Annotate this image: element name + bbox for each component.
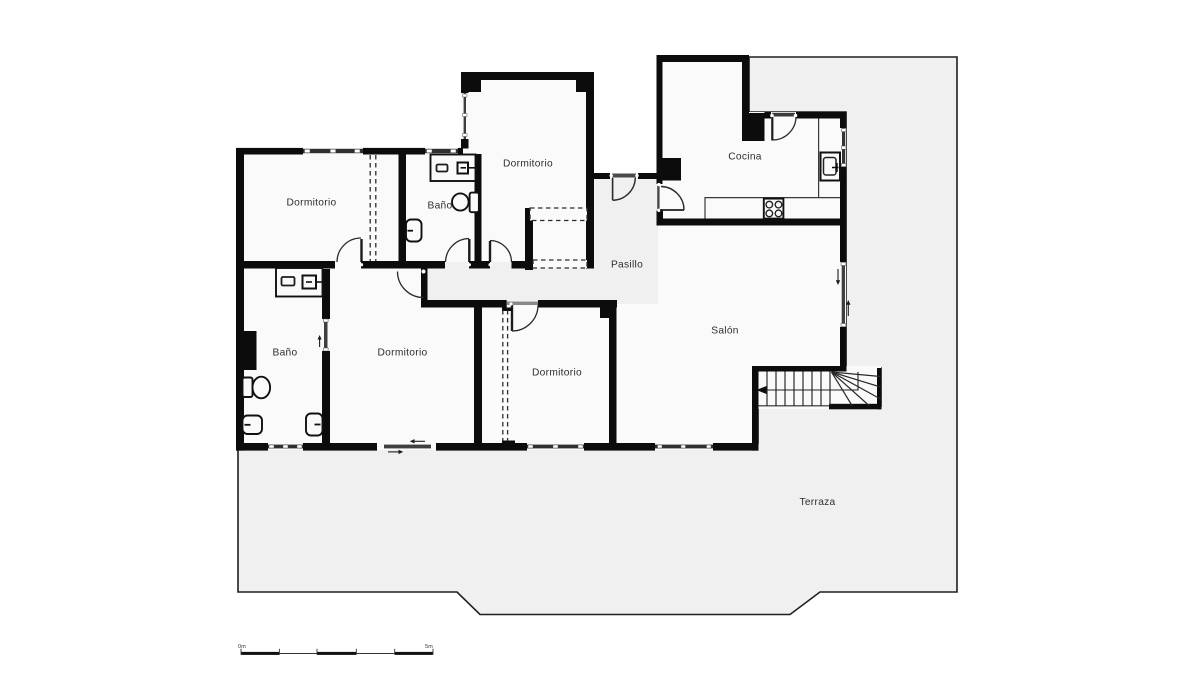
svg-text:Pasillo: Pasillo bbox=[611, 260, 643, 271]
svg-text:Cocina: Cocina bbox=[728, 152, 762, 163]
svg-text:0m: 0m bbox=[238, 644, 246, 650]
svg-text:Salón: Salón bbox=[711, 326, 739, 337]
svg-text:Baño: Baño bbox=[428, 201, 453, 212]
svg-text:Terraza: Terraza bbox=[799, 497, 835, 508]
svg-text:Dormitorio: Dormitorio bbox=[532, 368, 582, 379]
svg-text:Baño: Baño bbox=[273, 348, 298, 359]
svg-text:Dormitorio: Dormitorio bbox=[378, 348, 428, 359]
svg-text:5m: 5m bbox=[425, 644, 433, 650]
svg-text:Dormitorio: Dormitorio bbox=[503, 159, 553, 170]
svg-text:Dormitorio: Dormitorio bbox=[287, 198, 337, 209]
